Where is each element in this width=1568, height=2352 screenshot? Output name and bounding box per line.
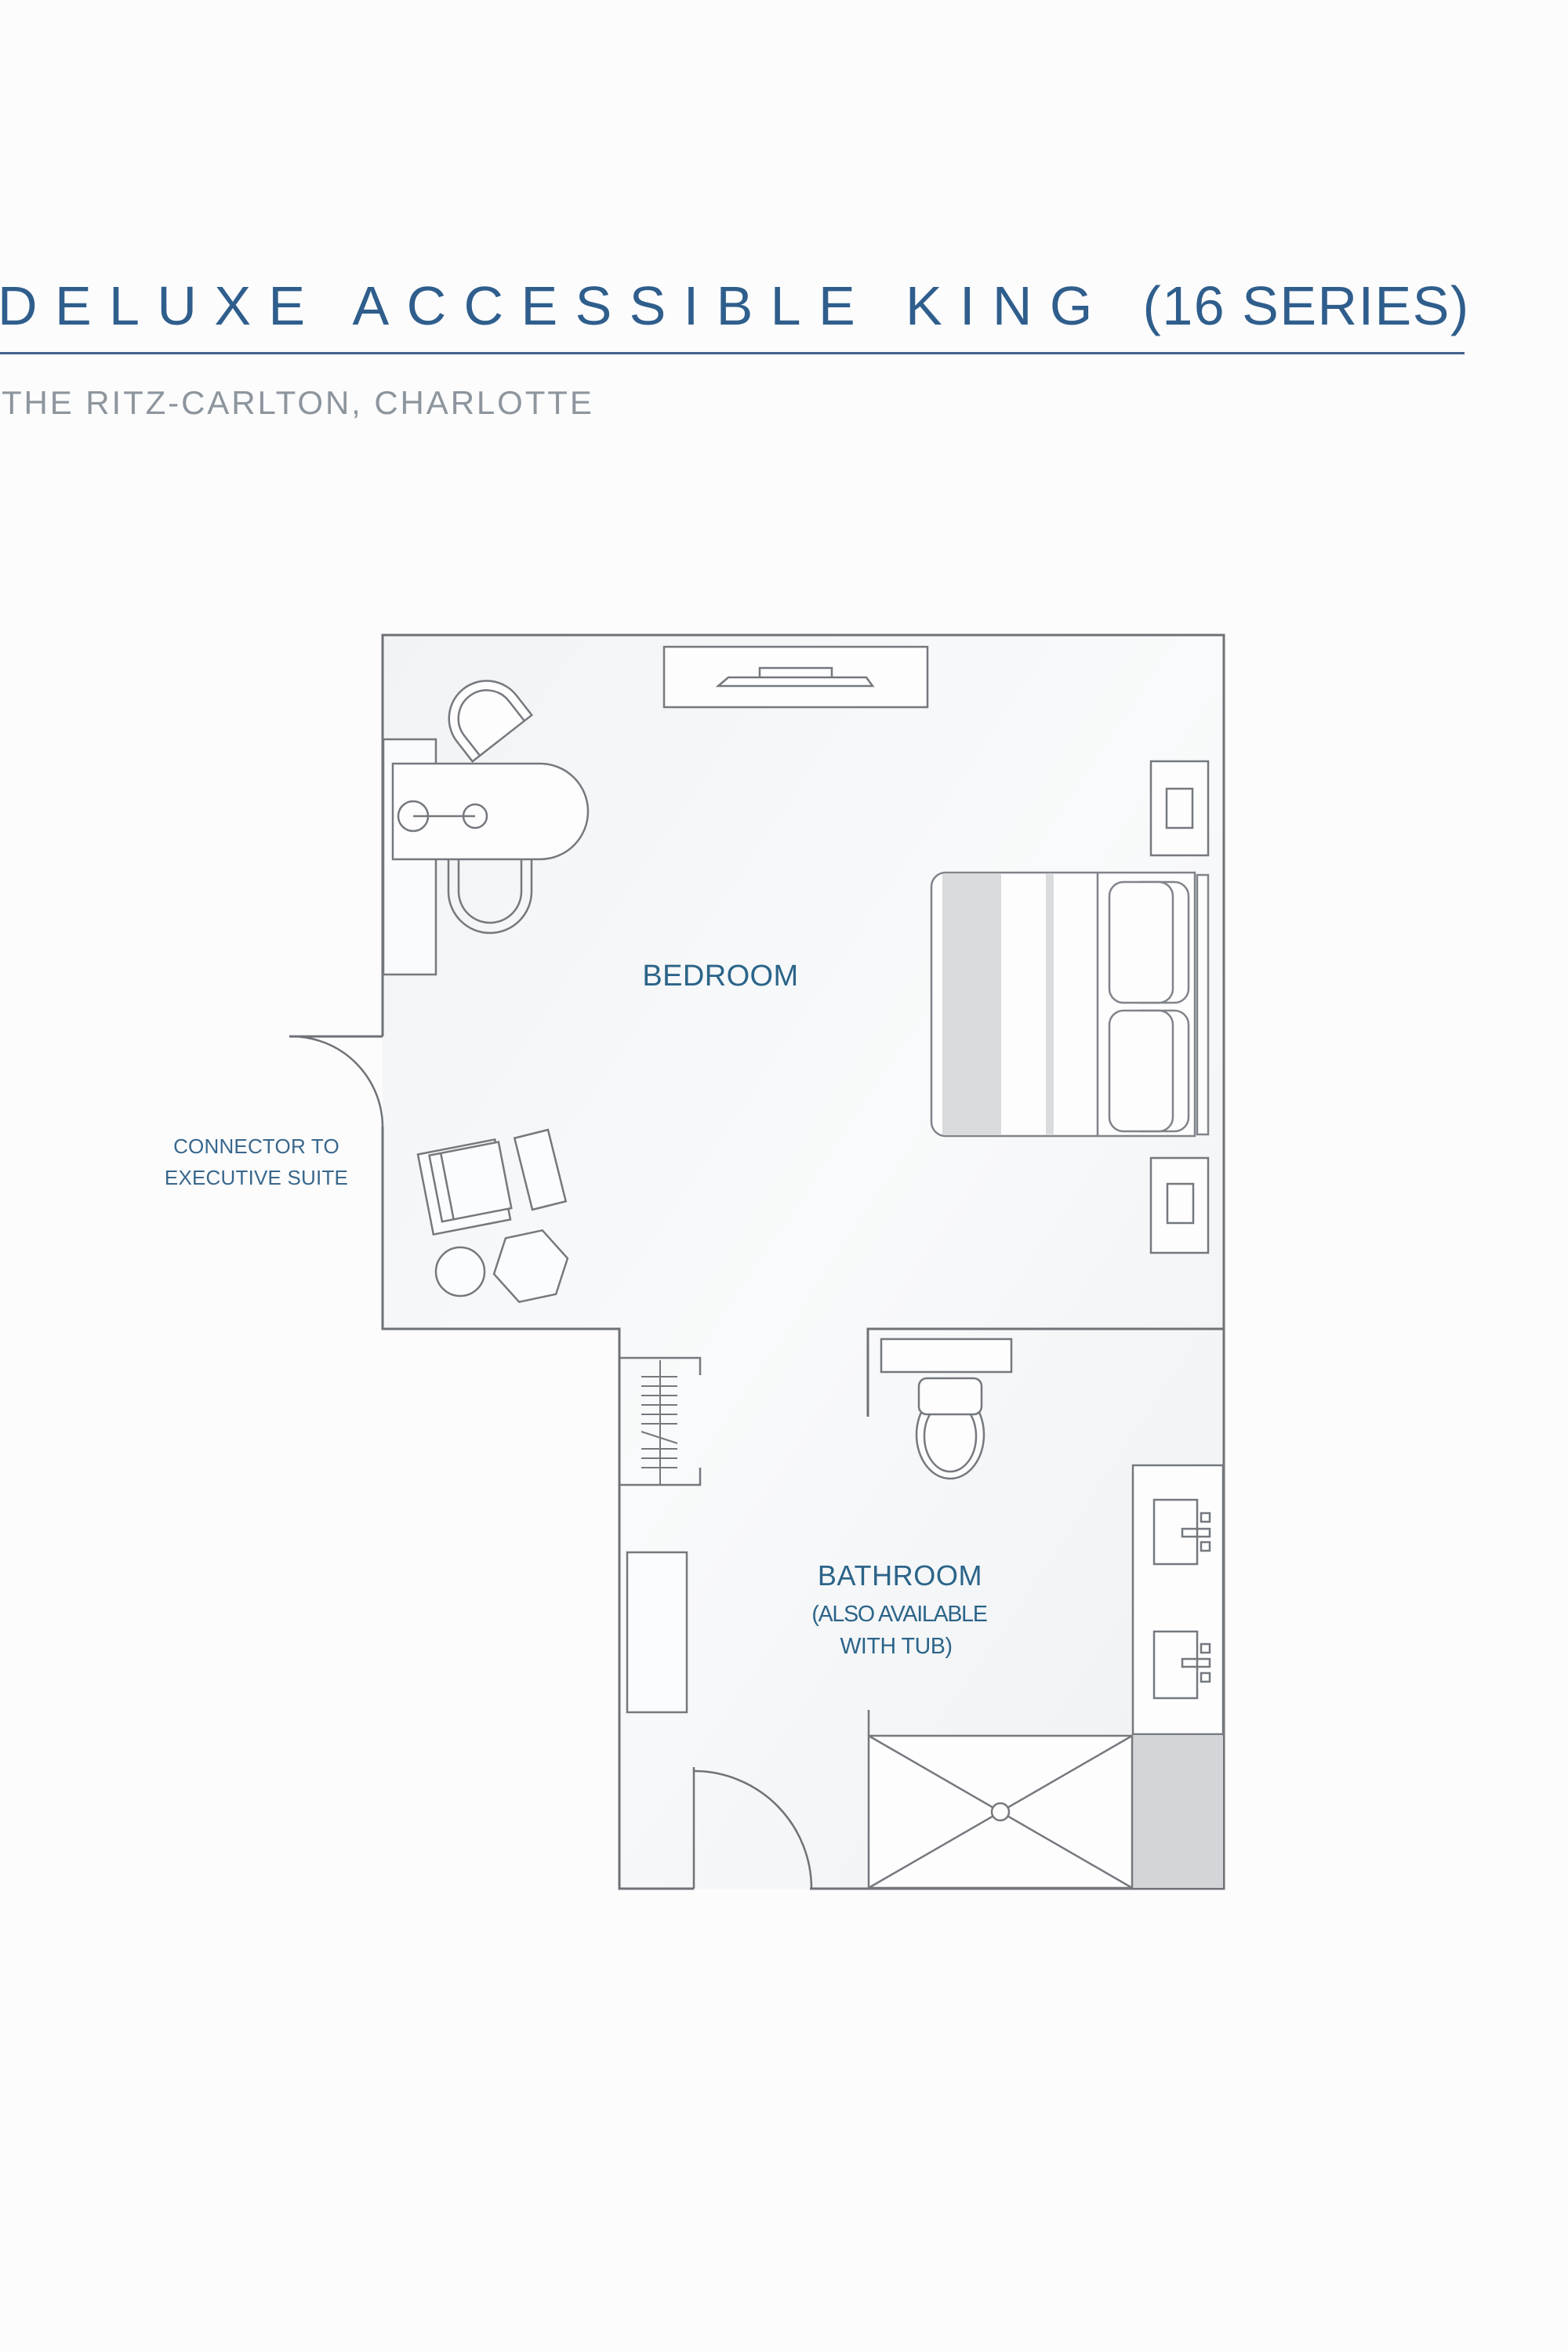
svg-text:THE RITZ-CARLTON, CHARLOTTE: THE RITZ-CARLTON, CHARLOTTE xyxy=(2,384,594,421)
svg-text:BATHROOM: BATHROOM xyxy=(818,1559,982,1592)
svg-text:EXECUTIVE SUITE: EXECUTIVE SUITE xyxy=(165,1166,348,1189)
svg-text:CONNECTOR TO: CONNECTOR TO xyxy=(173,1134,339,1158)
svg-text:DELUXE ACCESSIBLE KING (16 SER: DELUXE ACCESSIBLE KING (16 SERIES) xyxy=(0,275,1470,336)
svg-text:WITH TUB): WITH TUB) xyxy=(840,1634,952,1659)
svg-text:(ALSO AVAILABLE: (ALSO AVAILABLE xyxy=(811,1602,987,1627)
svg-text:BEDROOM: BEDROOM xyxy=(642,960,798,993)
